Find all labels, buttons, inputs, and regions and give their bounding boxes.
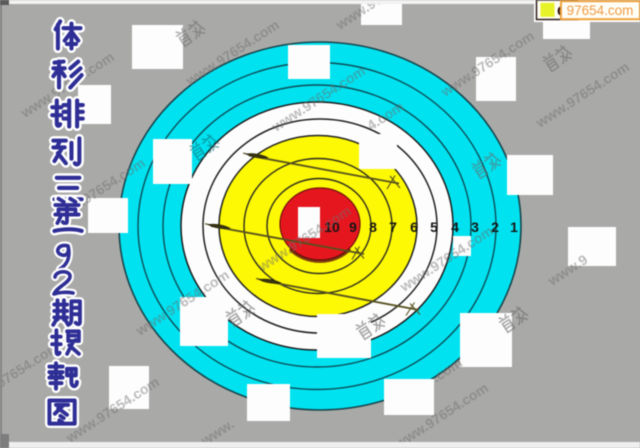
svg-text:1: 1	[510, 219, 518, 235]
svg-text:8: 8	[369, 219, 377, 235]
svg-text:6: 6	[410, 219, 418, 235]
svg-text:97654.com: 97654.com	[567, 3, 634, 18]
svg-text:4: 4	[451, 219, 459, 235]
svg-text:7: 7	[389, 219, 397, 235]
svg-text:9: 9	[349, 219, 357, 235]
svg-text:5: 5	[430, 219, 438, 235]
